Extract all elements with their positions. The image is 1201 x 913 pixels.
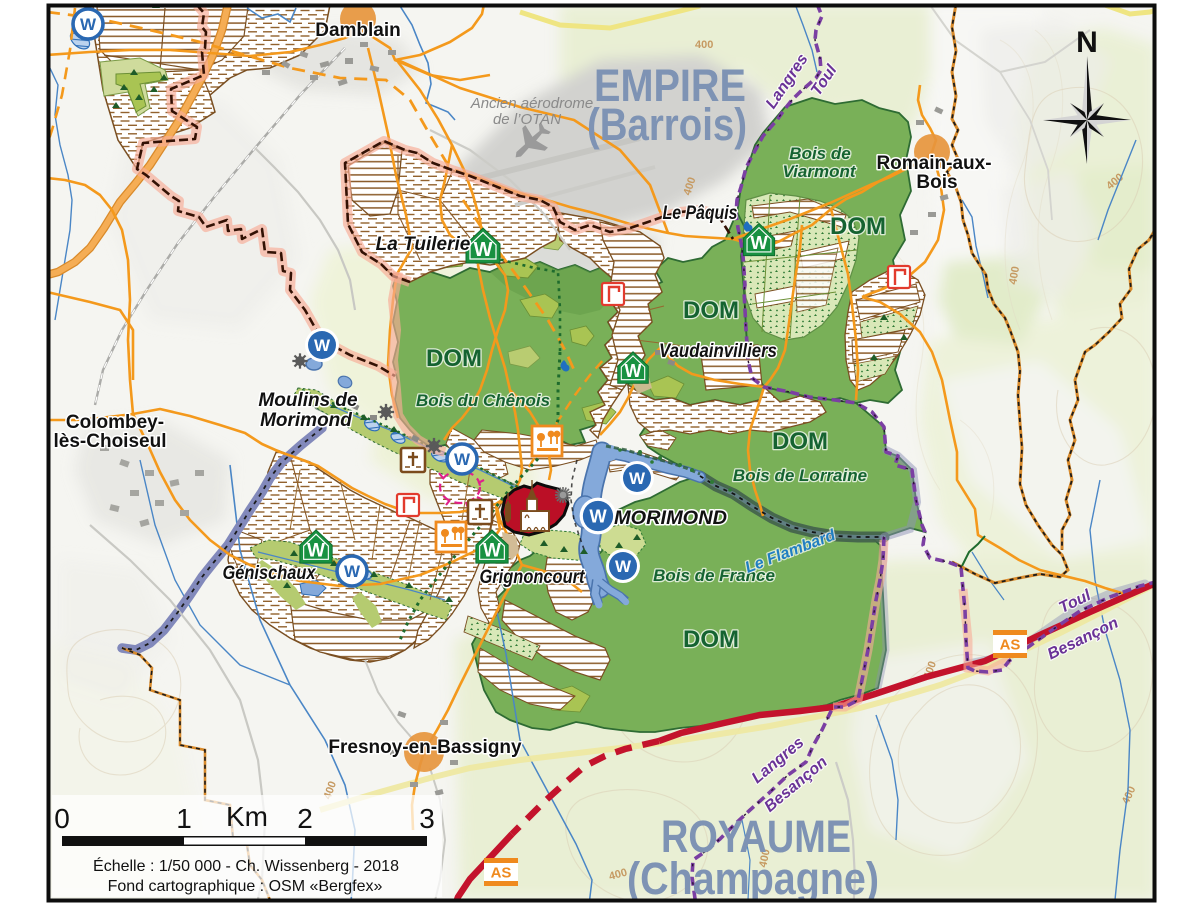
svg-text:AS: AS: [1000, 637, 1021, 654]
svg-text:(Champagne): (Champagne): [627, 853, 879, 904]
svg-text:1: 1: [176, 803, 192, 834]
svg-text:Romain-aux-: Romain-aux-: [876, 153, 991, 174]
svg-text:Bois de Lorraine: Bois de Lorraine: [733, 466, 867, 485]
svg-text:N: N: [1076, 26, 1098, 59]
svg-text:2: 2: [297, 803, 313, 834]
svg-text:Le Pâquis: Le Pâquis: [663, 203, 738, 224]
svg-text:Bois du Chênois: Bois du Chênois: [416, 391, 550, 410]
svg-text:Km: Km: [226, 801, 268, 832]
svg-text:Damblain: Damblain: [315, 20, 401, 41]
svg-text:Échelle : 1/50 000 - Ch. Wis: Échelle : 1/50 000 - Ch. Wissenberg - 20…: [93, 856, 399, 875]
svg-text:lès-Choiseul: lès-Choiseul: [54, 431, 167, 452]
svg-text:DOM: DOM: [772, 428, 828, 455]
svg-text:Bois de: Bois de: [789, 144, 850, 163]
svg-text:Ancien aérodrome: Ancien aérodrome: [470, 95, 594, 112]
svg-text:Viarmont: Viarmont: [782, 162, 856, 181]
svg-text:Fond cartographique : OSM «Ber: Fond cartographique : OSM «Bergfex»: [108, 878, 383, 895]
svg-text:400: 400: [695, 39, 713, 51]
svg-text:Fresnoy-en-Bassigny: Fresnoy-en-Bassigny: [328, 737, 522, 758]
svg-text:(Barrois): (Barrois): [587, 99, 747, 150]
svg-text:DOM: DOM: [683, 626, 739, 653]
svg-text:Génischaux: Génischaux: [223, 563, 317, 584]
svg-text:DOM: DOM: [830, 213, 886, 240]
svg-text:0: 0: [54, 803, 70, 834]
svg-text:AS: AS: [491, 865, 512, 882]
svg-text:Moulins de: Moulins de: [258, 390, 358, 411]
svg-text:Morimond: Morimond: [260, 410, 352, 431]
svg-text:Grignoncourt: Grignoncourt: [480, 567, 586, 588]
svg-text:DOM: DOM: [683, 297, 739, 324]
svg-text:Colombey-: Colombey-: [66, 412, 164, 433]
svg-text:DOM: DOM: [426, 345, 482, 372]
svg-text:Bois: Bois: [916, 172, 957, 193]
svg-text:La Tuilerie: La Tuilerie: [376, 234, 471, 255]
svg-text:de l’OTAN: de l’OTAN: [493, 111, 561, 128]
svg-text:Vaudainvilliers: Vaudainvilliers: [659, 341, 777, 362]
svg-text:3: 3: [419, 803, 435, 834]
svg-text:MORIMOND: MORIMOND: [614, 508, 727, 529]
